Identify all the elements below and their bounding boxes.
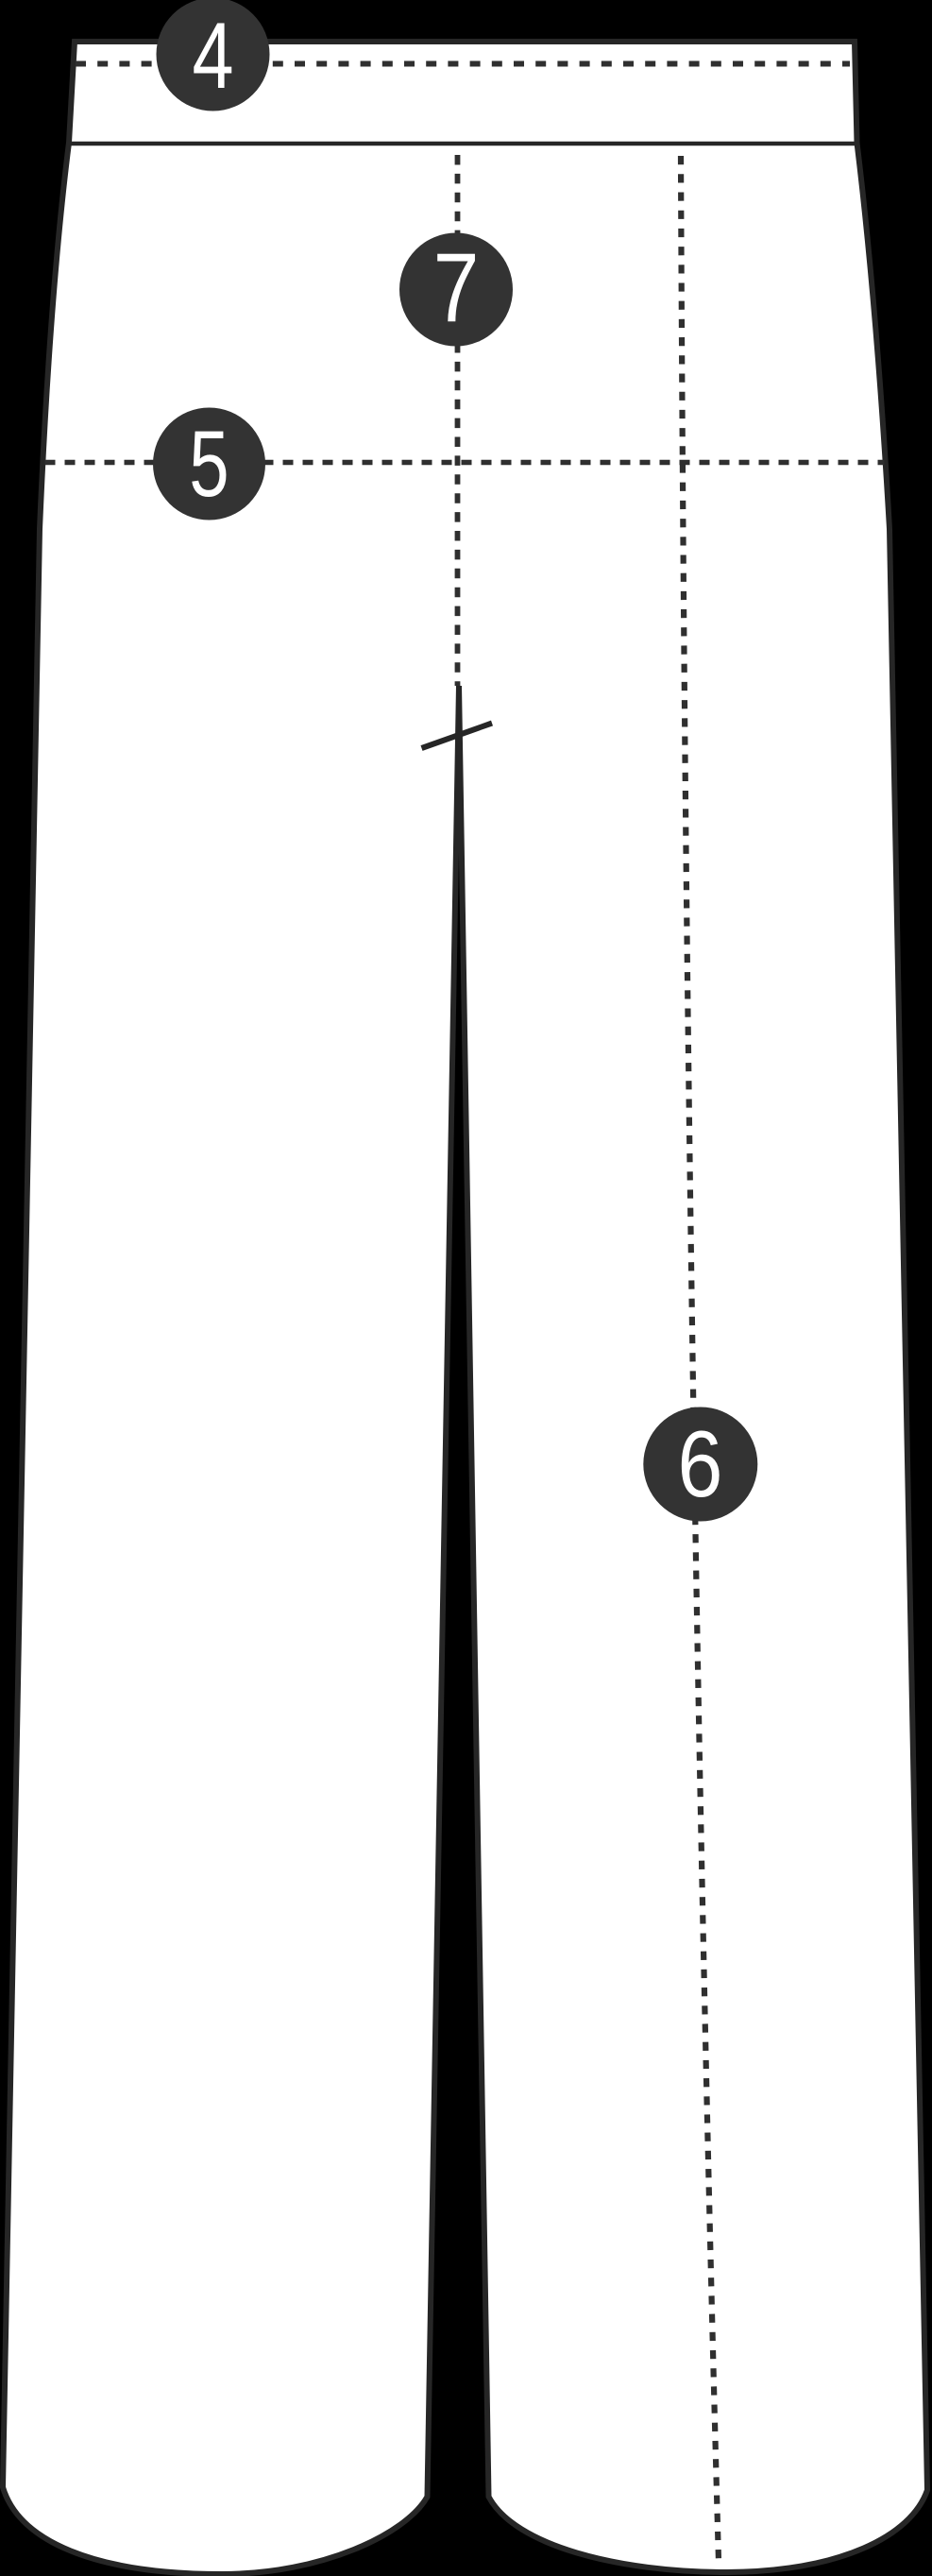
svg-text:5: 5 bbox=[189, 411, 229, 516]
svg-text:7: 7 bbox=[433, 233, 480, 343]
svg-text:4: 4 bbox=[192, 4, 233, 108]
svg-text:6: 6 bbox=[678, 1411, 723, 1516]
